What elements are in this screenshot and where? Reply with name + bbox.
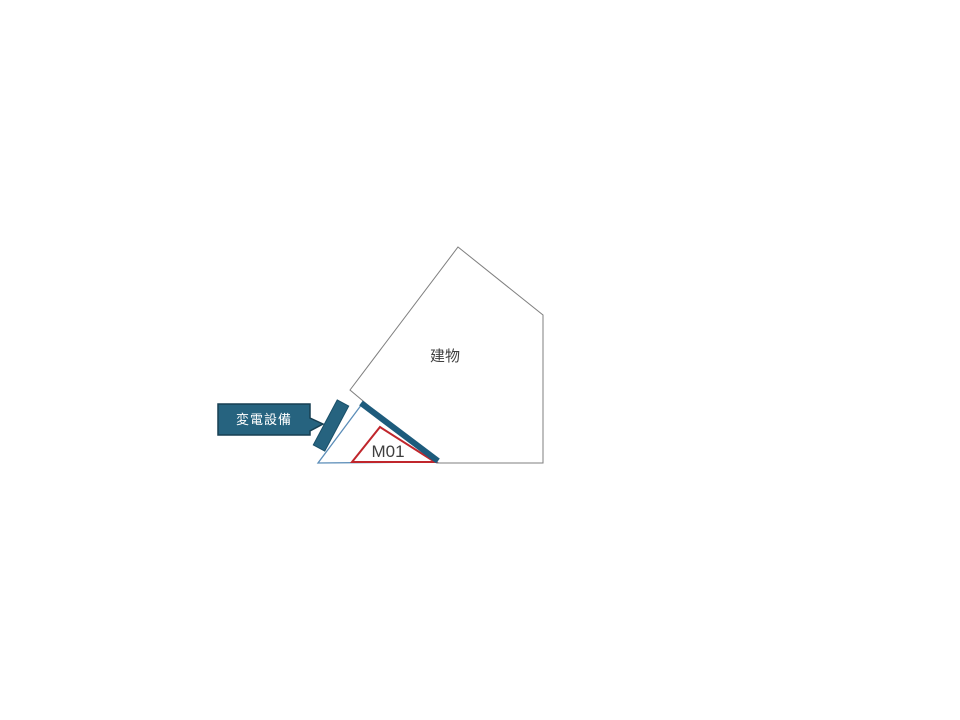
site-plan-canvas: 建物 M01 変電設備 bbox=[0, 0, 960, 720]
building-label: 建物 bbox=[430, 348, 460, 365]
site-plan-slide: 建物 M01 変電設備 bbox=[0, 0, 960, 720]
zone-m01-label: M01 bbox=[371, 442, 404, 461]
callout-label: 変電設備 bbox=[236, 412, 292, 427]
